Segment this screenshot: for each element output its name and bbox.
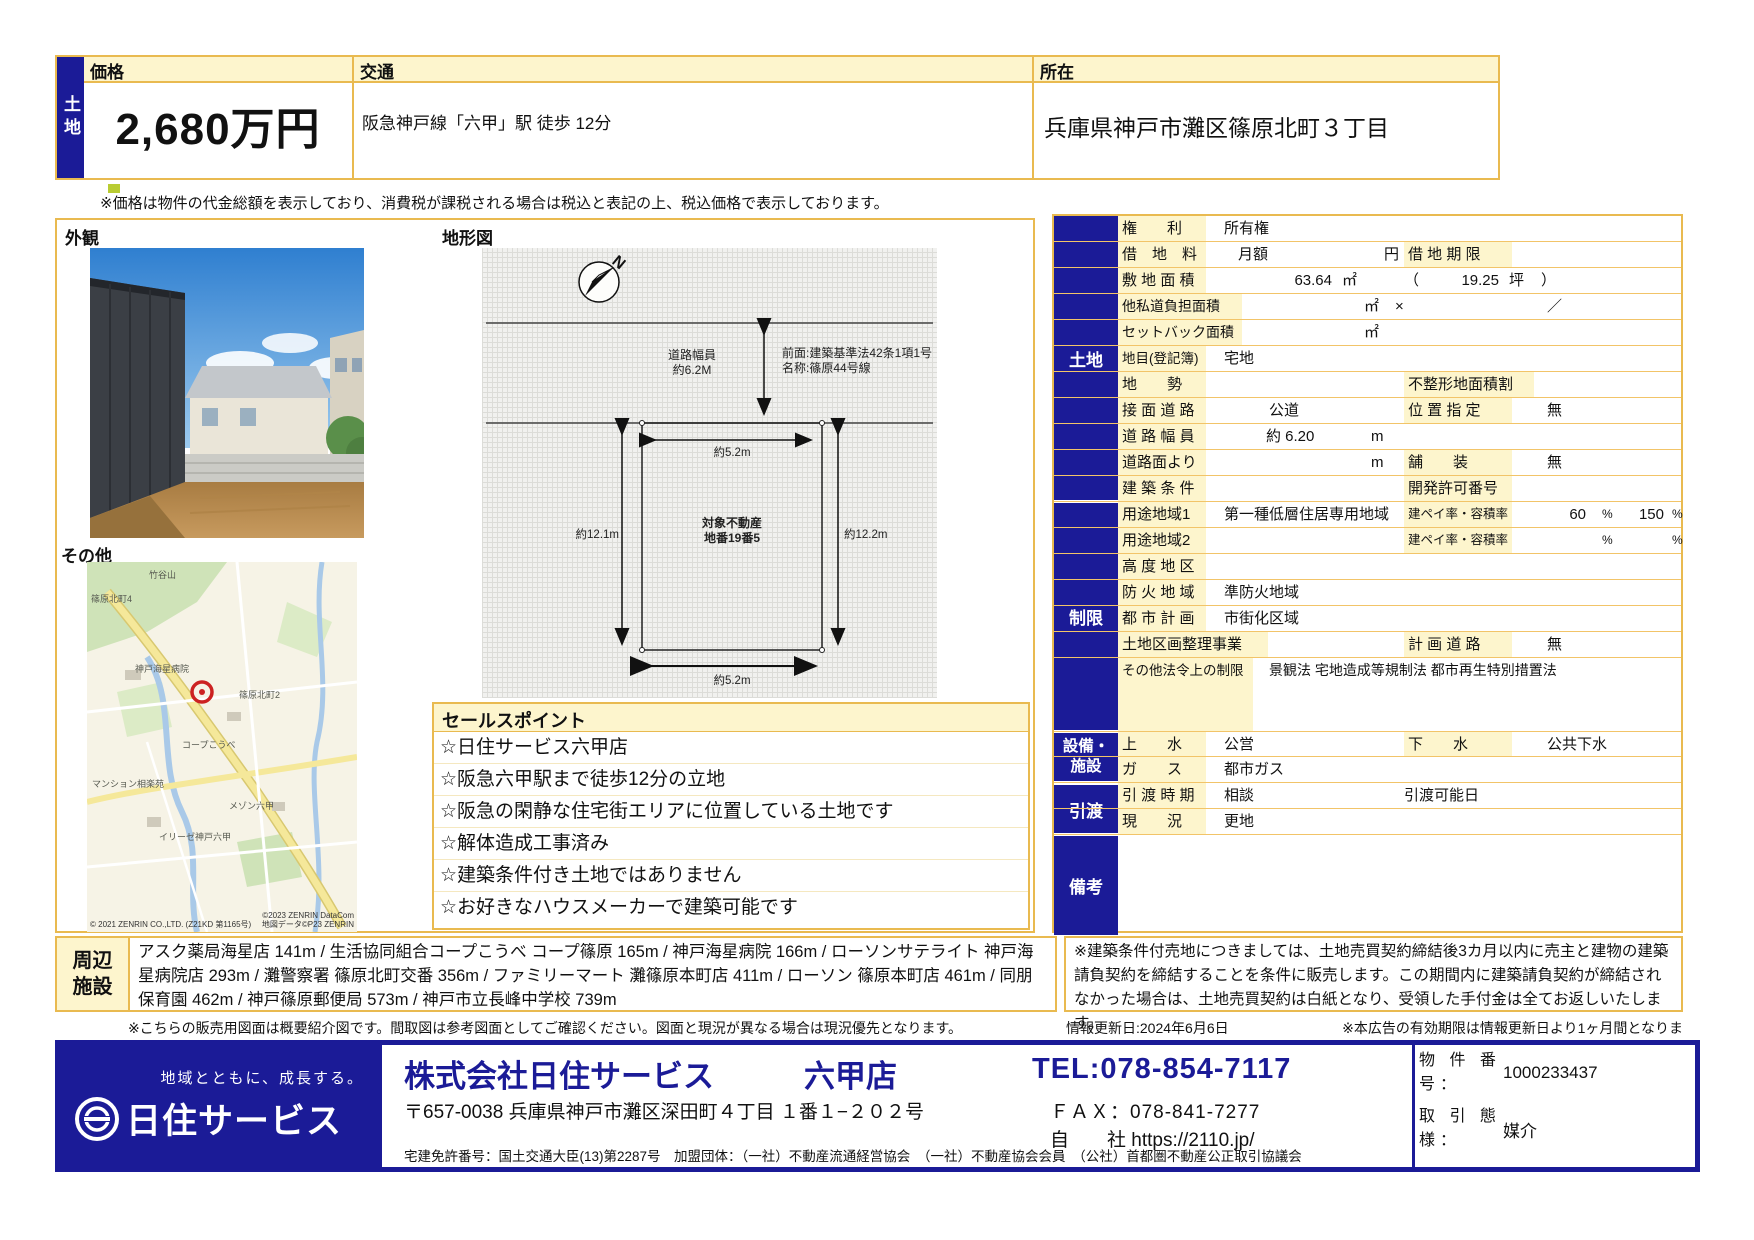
exterior-photo (90, 248, 364, 538)
row-label: 権 利 (1118, 216, 1206, 241)
price-header: 価格 (84, 57, 352, 83)
table-row: その他法令上の制限 景観法 宅地造成等規制法 都市再生特別措置法 (1054, 658, 1681, 732)
price-value: 2,680万円 (84, 93, 352, 157)
company-info-panel: 株式会社日住サービス 六甲店 〒657-0038 兵庫県神戸市灘区深田町４丁目 … (382, 1045, 1415, 1167)
row-value: 所有権 (1224, 216, 1269, 241)
property-type-badge: 土地 (57, 57, 84, 178)
update-date: 情報更新日:2024年6月6日 (1066, 1018, 1229, 1038)
table-row: セットバック面積 ㎡ (1054, 320, 1681, 346)
row-label: 用途地域1 (1118, 502, 1206, 527)
nearby-facilities-box: 周辺 施設 アスク薬局海星店 141m / 生活協同組合コープこうべ コープ篠原… (55, 936, 1057, 1012)
table-row: 道 路 幅 員 約 6.20 m (1054, 424, 1681, 450)
company-logo-text: 日住サービス (126, 1093, 342, 1144)
road-width-note: 道路幅員 約6.2M (632, 348, 752, 378)
tax-note: ※価格は物件の代金総額を表示しており、消費税が課税される場合は税込と表記の上、税… (100, 192, 889, 213)
row-label: セットバック面積 (1118, 320, 1242, 345)
row-label: 上 水 (1118, 732, 1206, 756)
row-label2: 舗 装 (1404, 450, 1512, 475)
row-mark: ／ (1547, 294, 1562, 319)
table-row: 高 度 地 区 (1054, 554, 1681, 580)
row-value: 相談 (1224, 783, 1254, 808)
row-unit: ㎡ (1364, 294, 1379, 319)
deal-type-value: 媒介 (1503, 1117, 1537, 1142)
table-row: ガ ス 都市ガス (1054, 757, 1681, 783)
row-label: 土地区画整理事業 (1118, 632, 1268, 657)
row-label: 道路面より (1118, 450, 1206, 475)
row-unit: m (1371, 424, 1384, 449)
row-value: 公道 (1269, 398, 1299, 423)
row-value: 宅地 (1224, 346, 1254, 371)
exterior-label: 外観 (65, 224, 99, 249)
row-value2: 無 (1547, 398, 1562, 423)
table-row: 道路面より m 舗 装 無 (1054, 450, 1681, 476)
company-logo-panel: 地域とともに、成長する。 日住サービス (60, 1045, 382, 1167)
price-column: 価格 2,680万円 (84, 57, 352, 178)
sales-point: ☆解体造成工事済み (434, 828, 1028, 860)
dim-bottom: 約5.2m (697, 674, 767, 689)
percent: % (1602, 528, 1613, 553)
row-label: その他法令上の制限 (1118, 658, 1253, 731)
handover-date-label: 引渡可能日 (1404, 783, 1479, 808)
table-row: 敷 地 面 積 63.64 ㎡ （ 19.25 坪 ） (1054, 268, 1681, 294)
property-number-value: 1000233437 (1503, 1063, 1598, 1083)
sales-point: ☆阪急六甲駅まで徒歩12分の立地 (434, 764, 1028, 796)
property-flyer: 土地 価格 2,680万円 交通 阪急神戸線「六甲」駅 徒歩 12分 所在 兵庫… (0, 0, 1754, 1240)
row-label: 建 築 条 件 (1118, 476, 1206, 501)
row-label: ガ ス (1118, 757, 1206, 782)
row-value: 月額 (1238, 242, 1268, 267)
fax-number: 078-841-7277 (1130, 1102, 1260, 1123)
building-condition-note: ※建築条件付売地につきましては、土地売買契約締結後3カ月以内に売主と建物の建築請… (1064, 936, 1683, 1012)
row-label: 他私道負担面積 (1118, 294, 1242, 319)
row-unit: m (1371, 450, 1384, 475)
site-plan-drawing: N (482, 248, 937, 698)
sales-point: ☆日住サービス六甲店 (434, 732, 1028, 764)
row-label: 現 況 (1118, 809, 1206, 834)
map-label: マンション相楽苑 (92, 777, 164, 790)
row-label2: 下 水 (1404, 732, 1512, 756)
license-line: 宅建免許番号：国土交通大臣(13)第2287号 加盟団体：（一社）不動産流通経営… (404, 1145, 1302, 1165)
row-value2: 無 (1547, 632, 1562, 657)
top-header: 土地 価格 2,680万円 交通 阪急神戸線「六甲」駅 徒歩 12分 所在 兵庫… (55, 55, 1500, 180)
remarks-row (1054, 835, 1681, 935)
percent: % (1672, 528, 1683, 553)
deal-type-label: 取 引 態 様： (1419, 1105, 1503, 1153)
row-value: 市街化区域 (1224, 606, 1299, 631)
row-label: 敷 地 面 積 (1118, 268, 1206, 293)
row-label: 用途地域2 (1118, 528, 1206, 553)
row-label2: 借 地 期 限 (1404, 242, 1512, 267)
row-value: 約 6.20 (1266, 424, 1314, 449)
front-road-note: 前面:建築基準法42条1項1号 名称:篠原44号線 (782, 346, 942, 376)
map-attribution: 地図データ©P23 ZENRIN (262, 919, 354, 930)
row-unit: ㎡ (1342, 268, 1357, 293)
legal-restrictions-value: 景観法 宅地造成等規制法 都市再生特別措置法 (1269, 658, 1557, 683)
property-number-row: 物 件 番 号： 1000233437 (1415, 1045, 1695, 1101)
exterior-photo-image (90, 248, 364, 538)
row-value: 準防火地域 (1224, 580, 1299, 605)
company-tagline: 地域とともに、成長する。 (160, 1067, 364, 1088)
sales-point: ☆阪急の閑静な住宅街エリアに位置している土地です (434, 796, 1028, 828)
transport-column: 交通 阪急神戸線「六甲」駅 徒歩 12分 (352, 57, 1032, 178)
transport-value: 阪急神戸線「六甲」駅 徒歩 12分 (354, 83, 1032, 134)
table-row: 借 地 料 月額 円 借 地 期 限 (1054, 242, 1681, 268)
row-value: 都市ガス (1224, 757, 1284, 782)
zoning-value: 第一種低層住居専用地域 (1224, 502, 1389, 527)
dim-top: 約5.2m (697, 446, 767, 461)
table-row: 接 面 道 路 公道 位 置 指 定 無 (1054, 398, 1681, 424)
company-footer: 地域とともに、成長する。 日住サービス 株式会社日住サービス 六甲店 〒657-… (55, 1040, 1700, 1172)
table-row: 地目(登記簿) 宅地 (1054, 346, 1681, 372)
row-unit: ㎡ (1364, 320, 1379, 345)
property-number-label: 物 件 番 号： (1419, 1049, 1503, 1097)
row-value2: 無 (1547, 450, 1562, 475)
property-details-table: 土地 制限 設備・ 施設 引渡 備考 権 利 所有権 借 地 料 月額 円 借 … (1052, 214, 1683, 933)
table-row: 引 渡 時 期 相談 引渡可能日 (1054, 783, 1681, 809)
table-row: 都 市 計 画 市街化区域 (1054, 606, 1681, 632)
lot-area-sqm: 63.64 (1244, 268, 1332, 293)
row-value2: 公共下水 (1547, 732, 1607, 757)
table-row: 上 水 公営 下 水 公共下水 (1054, 732, 1681, 757)
transport-header: 交通 (354, 57, 1032, 83)
row-label2: 建ペイ率・容積率 (1404, 528, 1512, 553)
table-row: 他私道負担面積 ㎡ × ／ (1054, 294, 1681, 320)
row-label: 接 面 道 路 (1118, 398, 1206, 423)
row-label: 防 火 地 域 (1118, 580, 1206, 605)
row-unit: 坪 (1509, 268, 1524, 293)
dim-left: 約12.1m (567, 528, 619, 543)
table-row: 土地区画整理事業 計 画 道 路 無 (1054, 632, 1681, 658)
table-row: 用途地域2 建ペイ率・容積率 % % (1054, 528, 1681, 554)
map-attribution: © 2021 ZENRIN CO.,LTD. (Z21KD 第1165号) (90, 919, 251, 930)
site-plan: N 道路幅員 約6.2M 前面:建築基準法42条1項1号 名称:篠原44号線 約… (482, 248, 937, 698)
lot-area-tsubo: 19.25 (1409, 268, 1499, 293)
company-fax: ＦＡＸ：078-841-7277 (1050, 1097, 1260, 1124)
company-name: 株式会社日住サービス 六甲店 (404, 1051, 897, 1096)
row-label: 地 勢 (1118, 372, 1206, 397)
location-header: 所在 (1034, 57, 1498, 83)
row-label: 高 度 地 区 (1118, 554, 1206, 579)
row-value: 公営 (1224, 732, 1254, 757)
table-row: 現 況 更地 (1054, 809, 1681, 835)
sales-points-title: セールスポイント (434, 704, 1028, 732)
table-row: 防 火 地 域 準防火地域 (1054, 580, 1681, 606)
table-row: 権 利 所有権 (1054, 216, 1681, 242)
row-label: 地目(登記簿) (1118, 346, 1206, 371)
row-label: 引 渡 時 期 (1118, 783, 1206, 808)
branch-name: 六甲店 (804, 1051, 897, 1096)
map-label: メゾン六甲 (229, 799, 274, 812)
map-label: 篠原北町2 (239, 688, 280, 701)
map-label: イリーゼ神戸六甲 (159, 830, 231, 843)
row-label2: 位 置 指 定 (1404, 398, 1512, 423)
company-logo-icon (74, 1096, 120, 1142)
area-map: 竹谷山 篠原北町4 神戸海星病院 篠原北町2 コープこうべ マンション相楽苑 メ… (87, 562, 357, 932)
paren: ） (1541, 268, 1556, 293)
location-column: 所在 兵庫県神戸市灘区篠原北町３丁目 (1032, 57, 1498, 178)
percent: % (1672, 502, 1683, 527)
coverage-ratio: 60 (1546, 502, 1586, 527)
sales-points-box: セールスポイント ☆日住サービス六甲店 ☆阪急六甲駅まで徒歩12分の立地 ☆阪急… (432, 702, 1030, 930)
map-label: コープこうべ (182, 738, 235, 751)
floor-area-ratio: 150 (1622, 502, 1664, 527)
row-mark: × (1395, 294, 1404, 319)
row-label: 道 路 幅 員 (1118, 424, 1206, 449)
left-content-box: 外観 地形図 その他 (55, 218, 1035, 933)
row-value: 更地 (1224, 809, 1254, 834)
row-label2: 開発許可番号 (1404, 476, 1512, 501)
dim-right: 約12.2m (844, 528, 896, 543)
property-number-panel: 物 件 番 号： 1000233437 取 引 態 様： 媒介 (1415, 1045, 1695, 1167)
company-name-text: 株式会社日住サービス (404, 1051, 714, 1096)
row-label: 都 市 計 画 (1118, 606, 1206, 631)
row-label2: 不整形地面積割 (1404, 372, 1534, 397)
figure-note: ※こちらの販売用図面は概要紹介図です。間取図は参考図面としてご確認ください。図面… (55, 1018, 1035, 1038)
table-row: 地 勢 不整形地面積割 (1054, 372, 1681, 398)
row-label: 借 地 料 (1118, 242, 1206, 267)
siteplan-label: 地形図 (442, 224, 493, 249)
row-label2: 計 画 道 路 (1404, 632, 1512, 657)
map-label: 神戸海星病院 (135, 662, 189, 675)
nearby-facilities-label: 周辺 施設 (57, 938, 130, 1010)
deal-type-row: 取 引 態 様： 媒介 (1415, 1101, 1695, 1157)
company-address: 〒657-0038 兵庫県神戸市灘区深田町４丁目 １番１−２０２号 (404, 1097, 924, 1124)
sales-point: ☆お好きなハウスメーカーで建築可能です (434, 892, 1028, 924)
company-tel: TEL:078-854-7117 (1032, 1053, 1291, 1086)
fax-label: ＦＡＸ： (1050, 1102, 1130, 1123)
percent: % (1602, 502, 1613, 527)
map-label: 竹谷山 (149, 568, 176, 581)
table-row: 建 築 条 件 開発許可番号 (1054, 476, 1681, 502)
nearby-facilities-text: アスク薬局海星店 141m / 生活協同組合コープこうべ コープ篠原 165m … (130, 938, 1055, 1010)
sales-point: ☆建築条件付き土地ではありません (434, 860, 1028, 892)
parcel-note: 対象不動産 地番19番5 (682, 516, 782, 546)
row-label2: 建ペイ率・容積率 (1404, 502, 1512, 527)
map-label: 篠原北町4 (91, 592, 132, 605)
table-row: 用途地域1 第一種低層住居専用地域 建ペイ率・容積率 60 % 150 % (1054, 502, 1681, 528)
row-unit: 円 (1337, 242, 1399, 267)
location-value: 兵庫県神戸市灘区篠原北町３丁目 (1034, 83, 1498, 143)
